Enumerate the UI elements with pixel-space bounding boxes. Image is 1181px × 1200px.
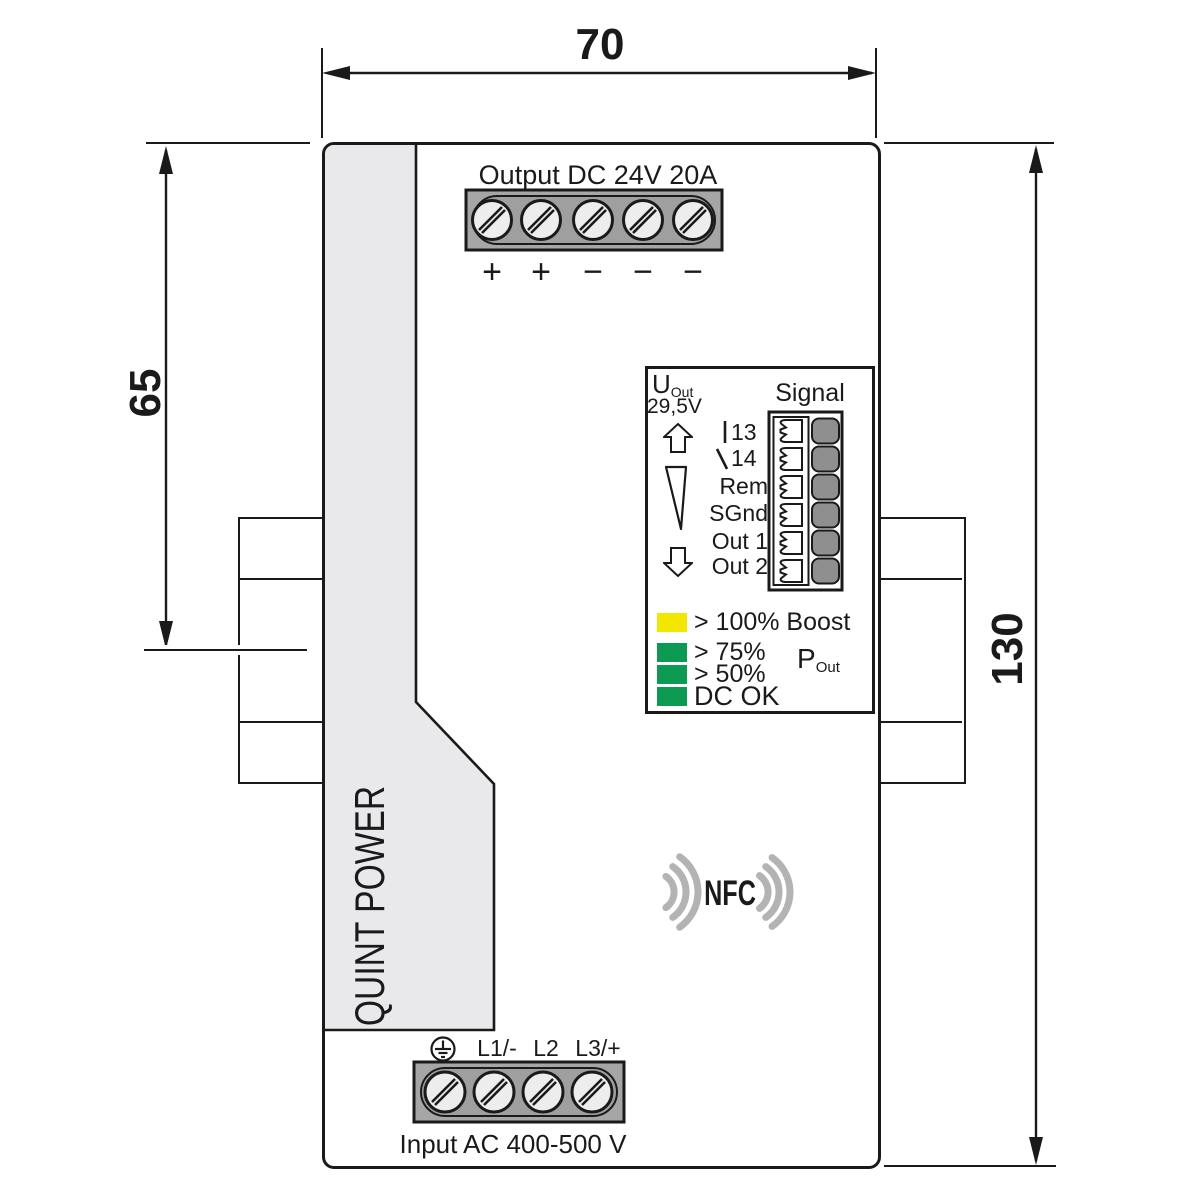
output-polarity-4: − <box>623 255 663 289</box>
earth-ground-icon <box>430 1036 456 1062</box>
arrow-up-icon <box>663 423 693 453</box>
output-polarity-1: + <box>472 255 512 289</box>
led-row-boost: > 100% Boost <box>657 611 850 633</box>
right-tab-line-upper <box>876 578 962 580</box>
out2-label: Out 2 <box>688 555 768 578</box>
right-mount-tab <box>876 517 966 784</box>
p-out-sub: Out <box>816 659 840 676</box>
left-tab-line-upper <box>238 578 323 580</box>
led-dcok-label: DC OK <box>694 683 780 710</box>
technical-diagram: QUINT POWER 70 65 130 Output DC 24V 20A <box>0 0 1181 1200</box>
p-out-label: POut <box>797 645 840 675</box>
p-out-letter: P <box>797 643 816 674</box>
nfc-label: NFC <box>701 875 759 911</box>
output-polarity-2: + <box>521 255 561 289</box>
dim65-witness-bottom <box>144 649 307 651</box>
out1-label: Out 1 <box>688 530 768 553</box>
input-title: Input AC 400-500 V <box>393 1130 633 1158</box>
output-terminal-block <box>464 188 724 252</box>
phase-l3-label: L3/+ <box>571 1036 625 1060</box>
phase-l2-label: L2 <box>524 1036 568 1060</box>
input-terminal-block <box>412 1060 626 1124</box>
signal-header: Signal <box>758 380 862 406</box>
dim70-label: 70 <box>520 22 680 68</box>
sgnd-label: SGnd <box>680 502 768 525</box>
led-boost-label: > 100% Boost <box>694 610 850 635</box>
rem-label: Rem <box>688 475 768 498</box>
led-yellow-icon <box>657 613 687 632</box>
led-green-icon <box>657 665 687 684</box>
led-row-dcok: DC OK <box>657 685 780 707</box>
led-green-icon <box>657 687 687 706</box>
output-title: Output DC 24V 20A <box>448 161 748 189</box>
brand-vertical-label: QUINT POWER <box>348 802 392 1010</box>
led-green-icon <box>657 643 687 662</box>
dim65-label: 65 <box>106 353 186 433</box>
dim130-label: 130 <box>958 599 1058 699</box>
dim65-witness-bottom-halo <box>144 645 307 655</box>
output-polarity-3: − <box>573 255 613 289</box>
phase-l1-label: L1/- <box>472 1036 522 1060</box>
right-tab-line-lower <box>876 721 962 723</box>
signal-connector <box>767 410 847 595</box>
contact-14-label: 14 <box>731 447 757 470</box>
left-tab-line-lower <box>238 721 323 723</box>
output-polarity-5: − <box>673 255 713 289</box>
contact-13-label: 13 <box>731 421 757 444</box>
u-out-value: 29,5V <box>647 396 702 417</box>
